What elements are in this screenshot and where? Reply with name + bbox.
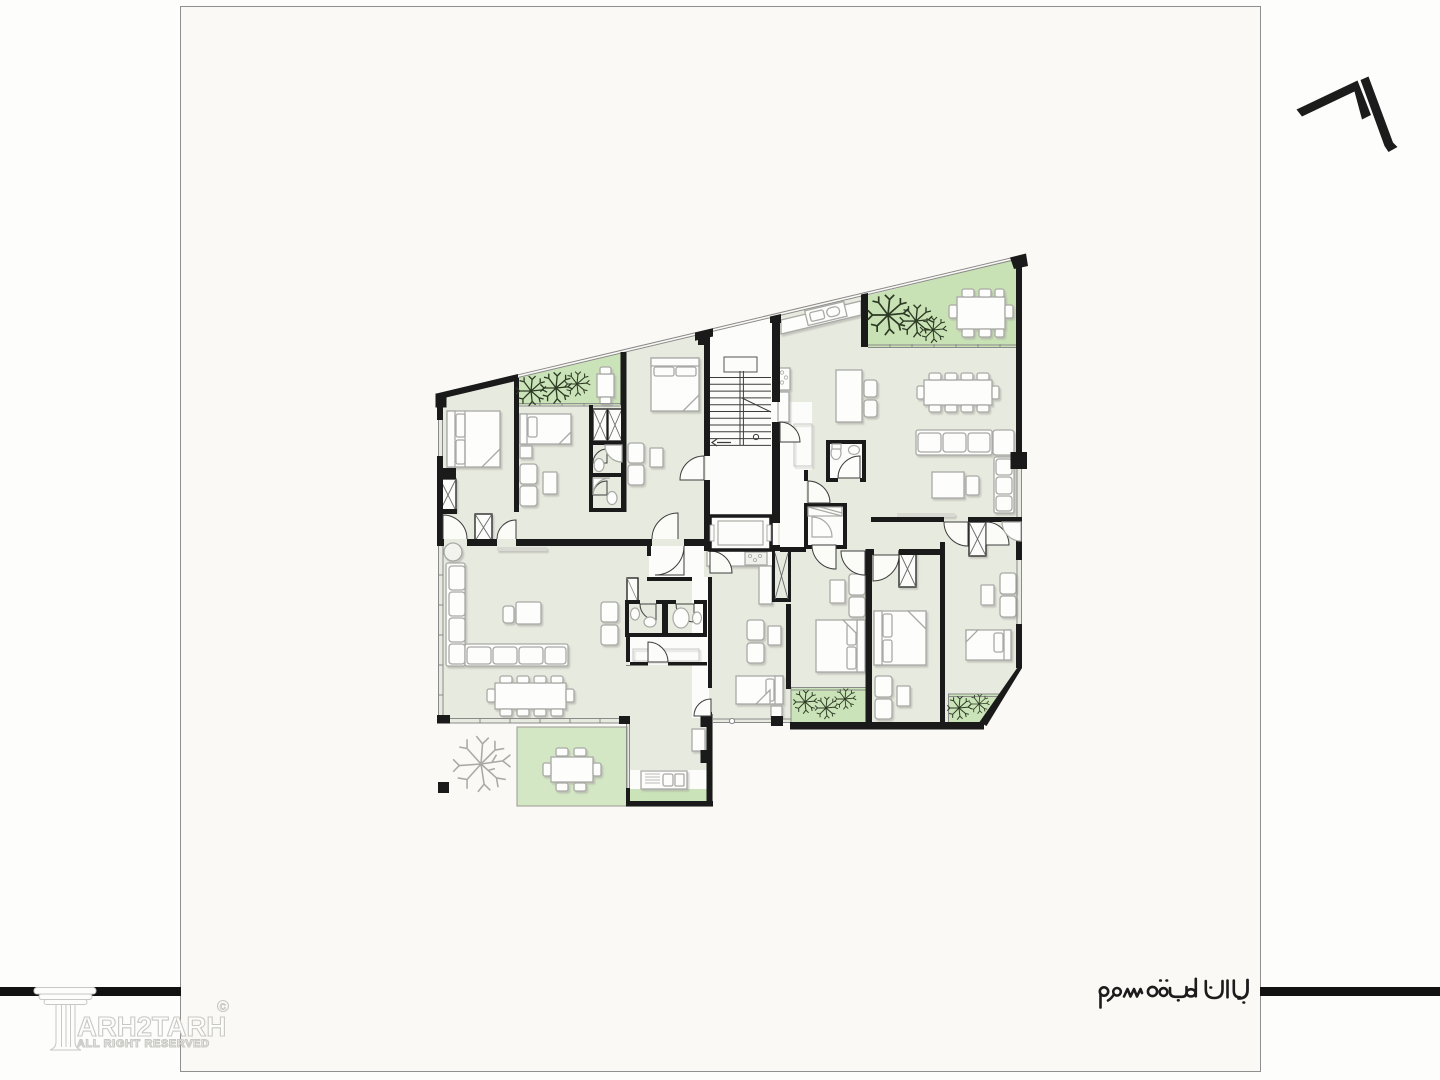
svg-text:C: C	[220, 1002, 226, 1012]
svg-text:ALL RIGHT RESERVED: ALL RIGHT RESERVED	[77, 1038, 210, 1050]
